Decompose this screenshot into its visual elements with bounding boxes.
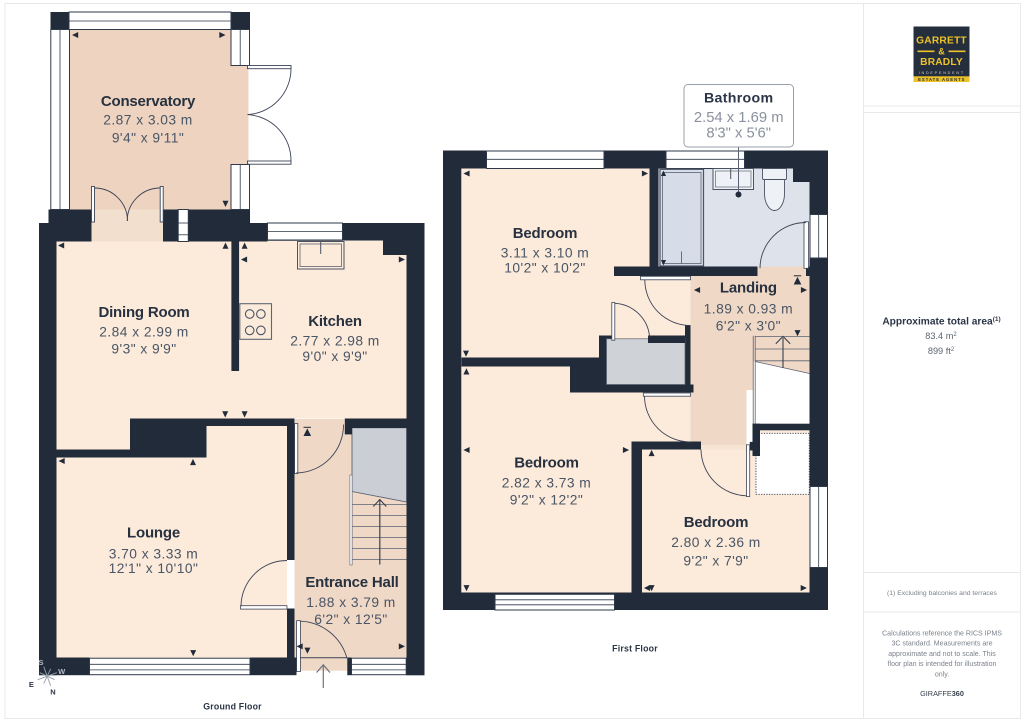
svg-text:First Floor: First Floor <box>612 644 658 654</box>
svg-text:2.54 x 1.69 m: 2.54 x 1.69 m <box>694 110 784 126</box>
svg-text:Bathroom: Bathroom <box>704 91 773 107</box>
svg-text:S: S <box>38 658 43 667</box>
svg-text:3C standard. Measurements are: 3C standard. Measurements are <box>891 641 992 648</box>
svg-text:Ground Floor: Ground Floor <box>203 702 262 712</box>
svg-text:9'4" x 9'11": 9'4" x 9'11" <box>112 131 184 146</box>
svg-text:Dining Room: Dining Room <box>98 304 189 321</box>
svg-text:Entrance Hall: Entrance Hall <box>305 574 398 591</box>
svg-text:ESTATE AGENTS: ESTATE AGENTS <box>918 77 965 82</box>
svg-text:Bedroom: Bedroom <box>684 514 748 531</box>
svg-text:Kitchen: Kitchen <box>308 313 362 330</box>
svg-text:2.80 x 2.36 m: 2.80 x 2.36 m <box>671 535 760 550</box>
svg-text:INDEPENDENT: INDEPENDENT <box>919 71 965 75</box>
svg-text:Calculations reference the RIC: Calculations reference the RICS IPMS <box>882 630 1002 637</box>
svg-text:9'0" x 9'9": 9'0" x 9'9" <box>302 349 367 364</box>
svg-text:BRADLY: BRADLY <box>920 57 963 68</box>
svg-text:1.88 x 3.79 m: 1.88 x 3.79 m <box>306 595 395 610</box>
svg-text:6'2" x 12'5": 6'2" x 12'5" <box>314 612 387 627</box>
svg-text:2.77 x 2.98 m: 2.77 x 2.98 m <box>290 334 379 349</box>
svg-text:floor plan is intended for ill: floor plan is intended for illustration <box>888 661 997 668</box>
svg-text:1.89 x 0.93 m: 1.89 x 0.93 m <box>704 302 793 317</box>
svg-text:Bedroom: Bedroom <box>514 455 578 472</box>
svg-text:9'2" x 7'9": 9'2" x 7'9" <box>683 554 748 569</box>
svg-text:9'3" x 9'9": 9'3" x 9'9" <box>111 342 176 357</box>
svg-text:only.: only. <box>935 671 949 678</box>
svg-text:Lounge: Lounge <box>127 525 180 542</box>
svg-text:2.84 x 2.99 m: 2.84 x 2.99 m <box>99 325 188 340</box>
svg-text:9'2" x 12'2": 9'2" x 12'2" <box>510 493 583 508</box>
svg-text:&: & <box>938 47 945 57</box>
svg-text:8'3" x 5'6": 8'3" x 5'6" <box>706 126 771 142</box>
svg-text:N: N <box>50 688 55 697</box>
svg-text:Landing: Landing <box>720 280 777 297</box>
svg-text:3.11 x 3.10 m: 3.11 x 3.10 m <box>501 246 589 261</box>
svg-text:Bedroom: Bedroom <box>513 225 577 242</box>
svg-text:W: W <box>58 667 66 676</box>
svg-text:GARRETT: GARRETT <box>916 35 967 46</box>
svg-text:approximate and not to scale.: approximate and not to scale. This <box>888 651 996 658</box>
svg-text:12'1" x 10'10": 12'1" x 10'10" <box>109 561 199 576</box>
svg-text:83.4 m2: 83.4 m2 <box>925 331 957 341</box>
svg-text:3.70 x 3.33 m: 3.70 x 3.33 m <box>109 547 198 562</box>
svg-text:6'2" x 3'0": 6'2" x 3'0" <box>716 319 781 334</box>
svg-text:Approximate total area(1): Approximate total area(1) <box>882 316 1000 328</box>
svg-text:899 ft2: 899 ft2 <box>928 346 955 356</box>
svg-text:E: E <box>29 680 34 689</box>
svg-text:10'2" x 10'2": 10'2" x 10'2" <box>504 261 586 276</box>
svg-text:(1) Excluding balconies and te: (1) Excluding balconies and terraces <box>887 590 998 597</box>
svg-text:2.82 x 3.73 m: 2.82 x 3.73 m <box>502 476 591 491</box>
svg-text:Conservatory: Conservatory <box>101 93 196 110</box>
svg-text:GIRAFFE360: GIRAFFE360 <box>920 689 964 698</box>
svg-text:2.87 x 3.03 m: 2.87 x 3.03 m <box>103 113 192 128</box>
